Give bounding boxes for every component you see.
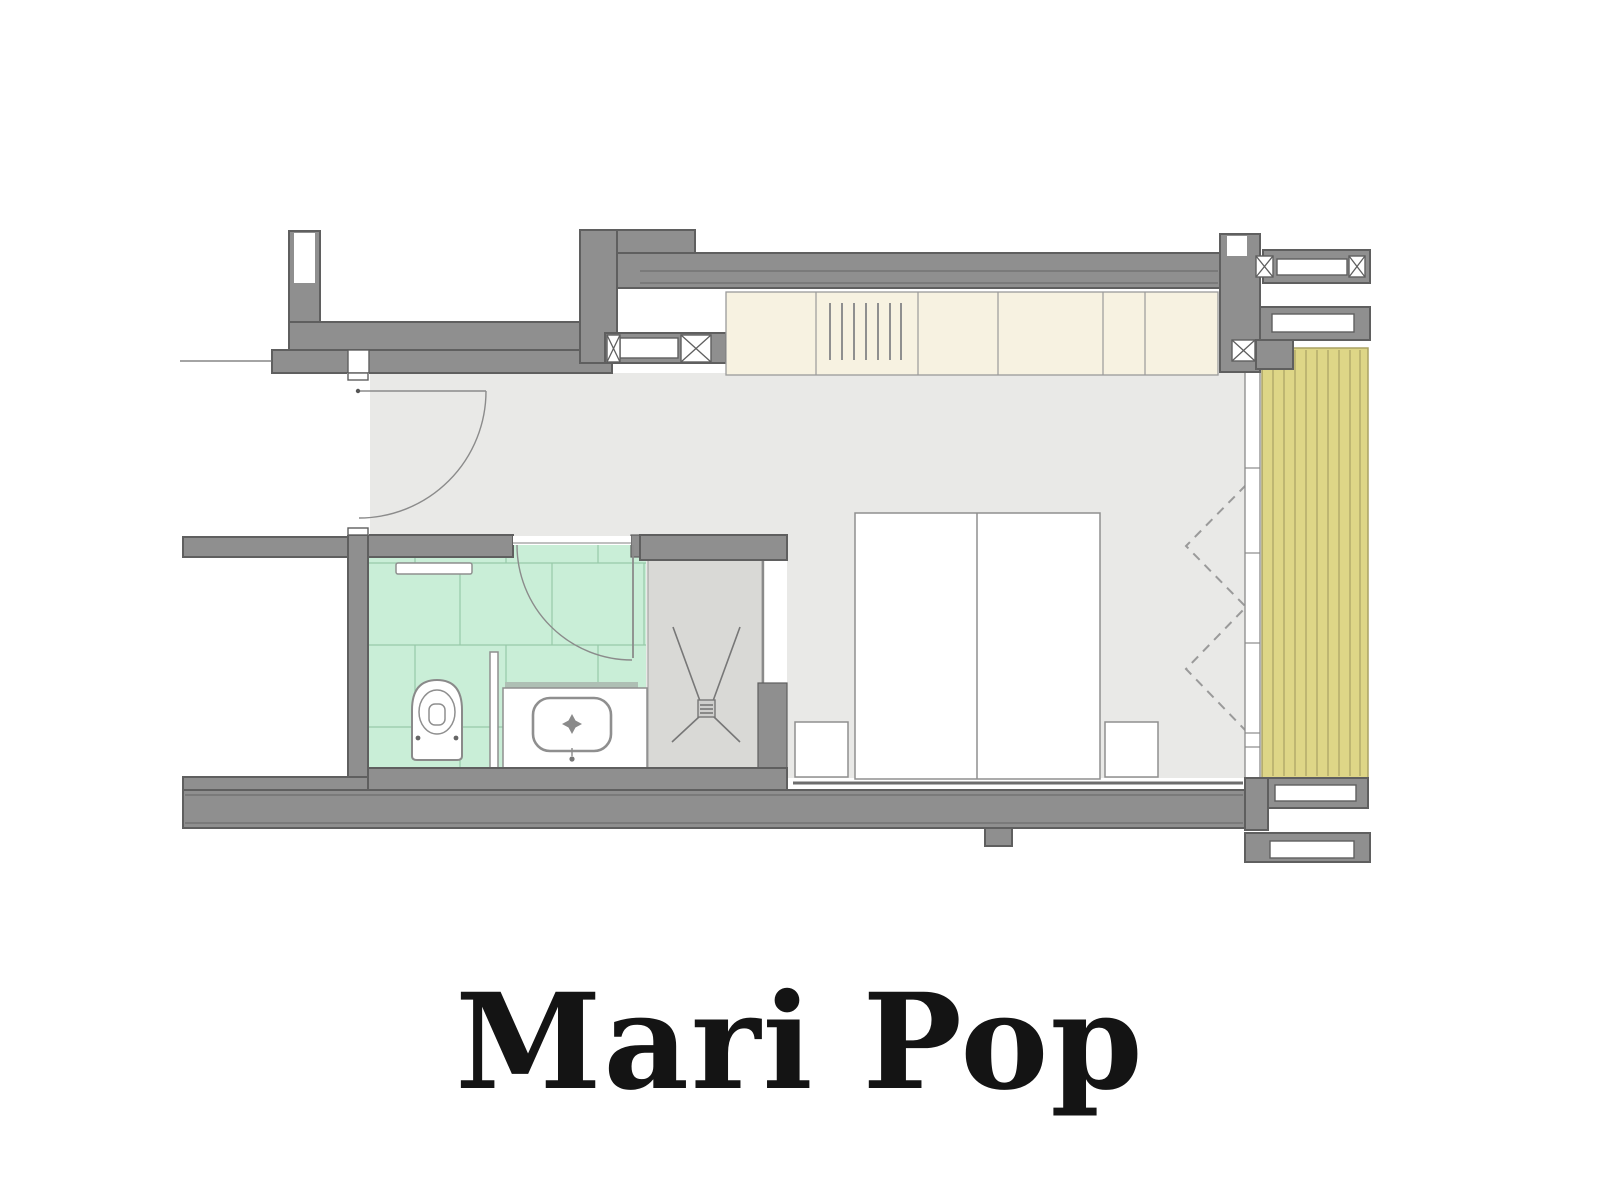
wall-vestibule-top <box>272 350 612 373</box>
wall-bottomright-comb <box>1245 778 1372 862</box>
balcony-deck <box>1262 348 1368 778</box>
nightstand-right <box>1105 722 1158 777</box>
nightstand-left <box>795 722 848 777</box>
wall-bathroom-left <box>348 535 368 779</box>
toilet-icon <box>412 680 462 760</box>
double-bed <box>855 513 1100 779</box>
wall-bottom-main <box>183 790 1245 828</box>
vanity-sink <box>503 682 647 770</box>
shower-side-wall <box>758 683 787 772</box>
wall-bathroom-bottom <box>368 768 787 790</box>
wall-bathroom-top <box>368 535 513 557</box>
wall-shower-top <box>640 535 787 560</box>
wall-bottom-stub <box>985 828 1012 846</box>
wall-corridor-stub <box>183 537 348 557</box>
towel-rail-icon <box>396 563 472 574</box>
wall-topleft-band <box>289 322 612 352</box>
vanity-partition <box>490 652 498 768</box>
plan-title: Mari Pop <box>0 960 1600 1125</box>
floorplan-page: Mari Pop <box>0 0 1600 1200</box>
wardrobe-unit <box>726 292 1218 375</box>
column-hatch-icon <box>1232 340 1255 361</box>
shower-area <box>648 560 787 772</box>
window <box>1245 372 1260 778</box>
